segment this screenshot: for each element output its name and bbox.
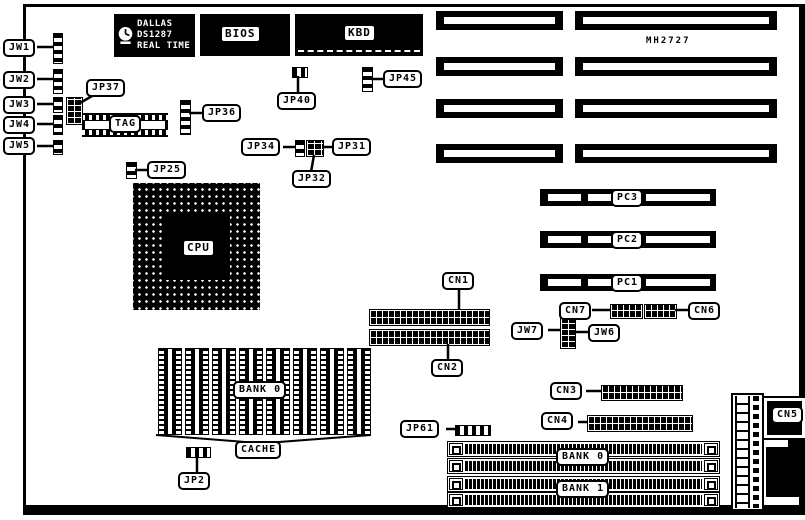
label-jp34: JP34 bbox=[241, 138, 280, 156]
label-jw1: JW1 bbox=[3, 39, 35, 57]
cpu-label: CPU bbox=[184, 241, 213, 255]
label-jw3: JW3 bbox=[3, 96, 35, 114]
label-cn7: CN7 bbox=[559, 302, 591, 320]
label-jp31: JP31 bbox=[332, 138, 371, 156]
label-jp40: JP40 bbox=[277, 92, 316, 110]
label-cn6: CN6 bbox=[688, 302, 720, 320]
label-jp37: JP37 bbox=[86, 79, 125, 97]
label-pc1: PC1 bbox=[611, 274, 643, 292]
label-jw7: JW7 bbox=[511, 322, 543, 340]
label-jp61: JP61 bbox=[400, 420, 439, 438]
label-jp45: JP45 bbox=[383, 70, 422, 88]
label-jp36: JP36 bbox=[202, 104, 241, 122]
tag-chip-label: TAG bbox=[109, 115, 141, 133]
label-cache-bank0: BANK 0 bbox=[233, 381, 286, 399]
label-simm-bank0: BANK 0 bbox=[556, 448, 609, 466]
label-pc2: PC2 bbox=[611, 231, 643, 249]
bios-chip-label: BIOS bbox=[222, 27, 259, 41]
label-jw6: JW6 bbox=[588, 324, 620, 342]
label-cn1: CN1 bbox=[442, 272, 474, 290]
label-cn4: CN4 bbox=[541, 412, 573, 430]
kbd-chip-label: KBD bbox=[345, 26, 374, 40]
label-pc3: PC3 bbox=[611, 189, 643, 207]
label-jp2: JP2 bbox=[178, 472, 210, 490]
label-jw2: JW2 bbox=[3, 71, 35, 89]
label-jw4: JW4 bbox=[3, 116, 35, 134]
label-cn2: CN2 bbox=[431, 359, 463, 377]
label-jp25: JP25 bbox=[147, 161, 186, 179]
motherboard-diagram: JW1 JW2 JW3 JW4 JW5 DALLAS DS1287 REAL T… bbox=[0, 0, 805, 520]
label-cache: CACHE bbox=[235, 441, 281, 459]
label-cn3: CN3 bbox=[550, 382, 582, 400]
label-jp32: JP32 bbox=[292, 170, 331, 188]
label-simm-bank1: BANK 1 bbox=[556, 480, 609, 498]
label-cn5: CN5 bbox=[771, 406, 803, 424]
label-jw5: JW5 bbox=[3, 137, 35, 155]
